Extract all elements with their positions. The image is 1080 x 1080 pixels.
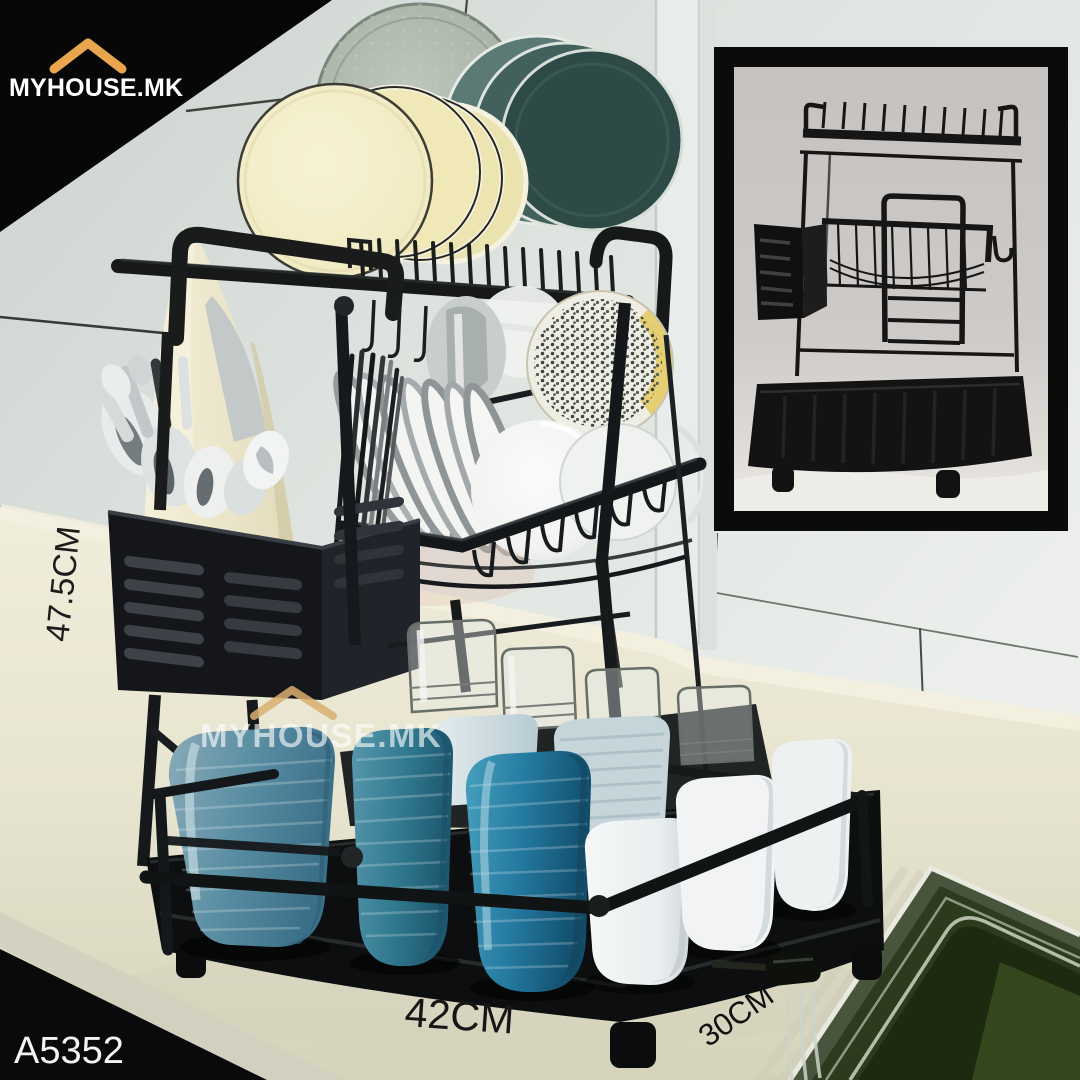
svg-text:MYHOUSE.MK: MYHOUSE.MK: [9, 74, 183, 102]
svg-text:A5352: A5352: [14, 1030, 124, 1072]
svg-text:42CM: 42CM: [403, 989, 515, 1043]
svg-text:MYHOUSE.MK: MYHOUSE.MK: [200, 717, 442, 754]
